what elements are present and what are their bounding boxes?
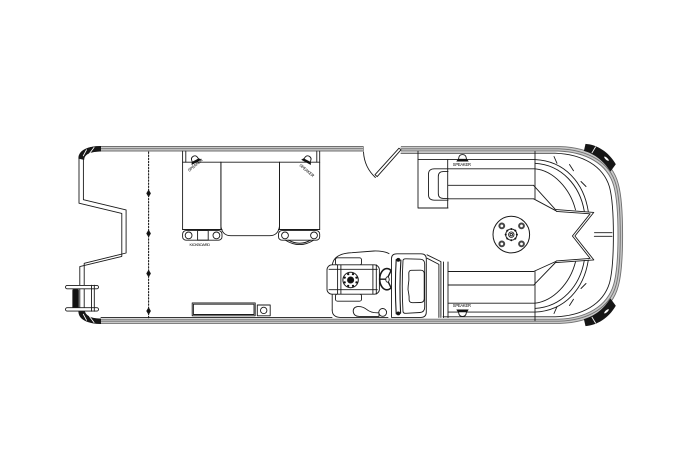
svg-text:SPEAKER: SPEAKER [453,162,471,167]
svg-text:KICKBOARD: KICKBOARD [190,242,211,247]
svg-text:SPEAKER: SPEAKER [453,303,471,308]
